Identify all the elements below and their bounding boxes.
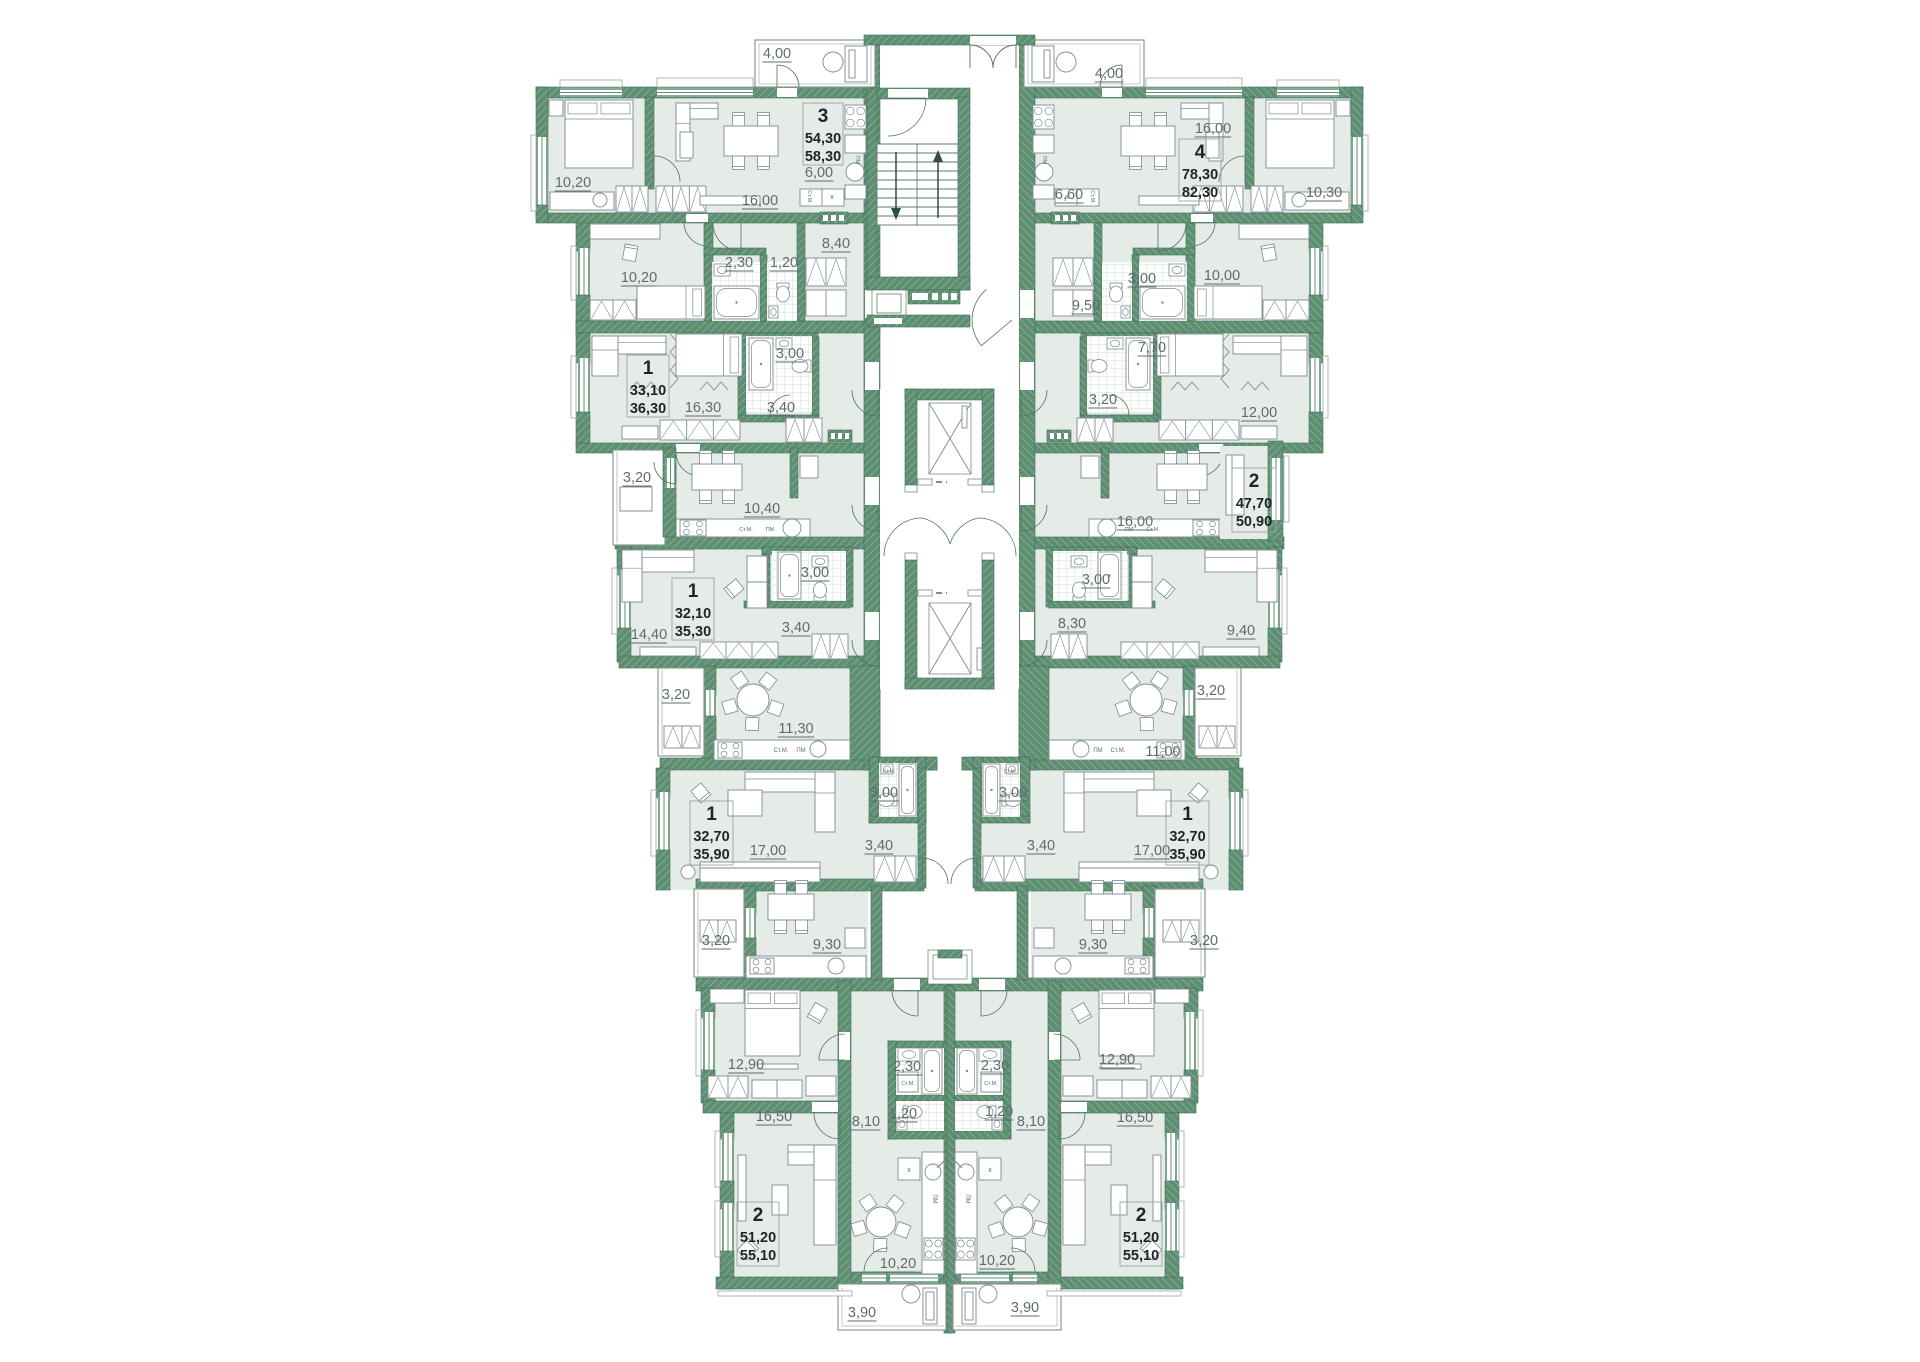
svg-text:58,30: 58,30 [805, 149, 841, 165]
svg-text:3,40: 3,40 [782, 620, 810, 636]
svg-text:3,90: 3,90 [1011, 1300, 1039, 1316]
svg-text:ПМ: ПМ [931, 1194, 937, 1203]
svg-text:ПМ: ПМ [766, 527, 775, 533]
svg-text:7,70: 7,70 [1138, 340, 1166, 356]
svg-text:10,00: 10,00 [1204, 268, 1240, 284]
svg-text:1: 1 [688, 581, 699, 602]
svg-text:4,00: 4,00 [763, 46, 791, 62]
svg-text:6,00: 6,00 [805, 165, 833, 181]
svg-text:Ст.М.: Ст.М. [1111, 748, 1126, 754]
svg-text:x: x [907, 1167, 911, 1174]
svg-text:3,20: 3,20 [623, 470, 651, 486]
svg-text:6,60: 6,60 [1055, 187, 1083, 203]
svg-text:2: 2 [1136, 1205, 1147, 1226]
svg-text:36,30: 36,30 [630, 401, 666, 417]
svg-text:Ст.М.: Ст.М. [774, 748, 789, 754]
svg-text:Ст.М.: Ст.М. [984, 1081, 998, 1087]
svg-text:3,00: 3,00 [776, 346, 804, 362]
svg-text:10,20: 10,20 [979, 1253, 1015, 1269]
svg-text:3,20: 3,20 [662, 687, 690, 703]
svg-text:12,00: 12,00 [1241, 405, 1277, 421]
svg-text:9,50: 9,50 [1072, 298, 1100, 314]
svg-text:2: 2 [1249, 471, 1260, 492]
svg-text:3,00: 3,00 [870, 785, 898, 801]
svg-text:ПМ: ПМ [796, 748, 805, 754]
svg-text:16,50: 16,50 [756, 1109, 792, 1125]
svg-text:17,00: 17,00 [1134, 843, 1170, 859]
svg-text:8,10: 8,10 [852, 1114, 880, 1130]
svg-text:10,20: 10,20 [880, 1256, 916, 1272]
svg-text:50,90: 50,90 [1236, 514, 1272, 530]
svg-text:Ст.М.: Ст.М. [806, 190, 812, 204]
svg-text:55,10: 55,10 [740, 1248, 776, 1264]
svg-text:32,70: 32,70 [1169, 829, 1205, 845]
svg-text:12,90: 12,90 [728, 1057, 764, 1073]
svg-text:35,90: 35,90 [1169, 847, 1205, 863]
svg-text:9,40: 9,40 [1227, 623, 1255, 639]
svg-text:10,40: 10,40 [744, 501, 780, 517]
svg-text:9,30: 9,30 [1079, 937, 1107, 953]
svg-text:3,00: 3,00 [1128, 271, 1156, 287]
svg-text:10,20: 10,20 [621, 270, 657, 286]
svg-text:9,30: 9,30 [813, 937, 841, 953]
svg-text:1,20: 1,20 [770, 255, 798, 271]
svg-text:51,20: 51,20 [740, 1230, 776, 1246]
svg-text:17,00: 17,00 [750, 843, 786, 859]
svg-text:ПМ: ПМ [854, 156, 860, 165]
svg-text:1: 1 [1182, 804, 1193, 825]
svg-text:55,10: 55,10 [1123, 1248, 1159, 1264]
svg-text:35,90: 35,90 [693, 847, 729, 863]
svg-text:2,30: 2,30 [981, 1058, 1009, 1074]
svg-text:11,30: 11,30 [778, 721, 813, 737]
svg-text:2,30: 2,30 [893, 1059, 921, 1075]
svg-text:1: 1 [643, 358, 654, 379]
svg-text:82,30: 82,30 [1182, 185, 1218, 201]
svg-text:78,30: 78,30 [1182, 167, 1218, 183]
svg-text:3,20: 3,20 [1197, 683, 1225, 699]
svg-text:3,40: 3,40 [865, 838, 893, 854]
svg-text:x: x [1065, 194, 1069, 201]
svg-text:35,30: 35,30 [675, 624, 711, 640]
svg-text:14,40: 14,40 [631, 627, 667, 643]
svg-text:3,00: 3,00 [1082, 572, 1110, 588]
svg-text:3,00: 3,00 [801, 565, 829, 581]
svg-text:16,50: 16,50 [1117, 1110, 1153, 1126]
svg-text:2: 2 [753, 1205, 764, 1226]
svg-text:Ст.М.: Ст.М. [1146, 527, 1160, 533]
svg-text:16,00: 16,00 [742, 193, 778, 209]
svg-text:ПМ: ПМ [964, 1194, 970, 1203]
svg-text:3,20: 3,20 [1089, 392, 1117, 408]
svg-text:32,70: 32,70 [693, 829, 729, 845]
svg-text:Ст.М.: Ст.М. [1089, 190, 1095, 204]
svg-text:Ст.М.: Ст.М. [739, 527, 753, 533]
svg-text:10,30: 10,30 [1306, 185, 1342, 201]
svg-text:11,00: 11,00 [1145, 744, 1180, 760]
svg-text:ПМ: ПМ [1093, 748, 1102, 754]
svg-text:3,20: 3,20 [702, 933, 730, 949]
svg-text:10,20: 10,20 [555, 175, 591, 191]
svg-text:4: 4 [1195, 142, 1206, 163]
svg-text:16,00: 16,00 [1195, 121, 1231, 137]
svg-text:ПМ: ПМ [1041, 156, 1047, 165]
svg-text:3,40: 3,40 [767, 400, 795, 416]
svg-text:x: x [830, 194, 834, 201]
svg-text:3,20: 3,20 [1190, 933, 1218, 949]
svg-text:32,10: 32,10 [675, 606, 711, 622]
svg-text:3,00: 3,00 [999, 785, 1027, 801]
svg-text:33,10: 33,10 [630, 383, 666, 399]
svg-text:8,40: 8,40 [822, 236, 850, 252]
svg-text:1: 1 [706, 804, 717, 825]
svg-text:1,20: 1,20 [985, 1104, 1013, 1120]
svg-text:8,30: 8,30 [1058, 616, 1086, 632]
svg-text:3,90: 3,90 [848, 1305, 876, 1321]
svg-text:2,30: 2,30 [725, 255, 753, 271]
svg-text:1,20: 1,20 [889, 1106, 917, 1122]
svg-text:3: 3 [818, 106, 829, 127]
svg-text:Ст.М.: Ст.М. [883, 769, 895, 775]
svg-text:12,90: 12,90 [1099, 1052, 1135, 1068]
svg-text:ПМ: ПМ [1125, 527, 1134, 533]
svg-text:47,70: 47,70 [1236, 496, 1272, 512]
svg-text:51,20: 51,20 [1123, 1230, 1159, 1246]
svg-text:16,30: 16,30 [685, 400, 721, 416]
svg-text:x: x [988, 1167, 992, 1174]
svg-text:Ст.М.: Ст.М. [901, 1081, 915, 1087]
svg-text:3,40: 3,40 [1027, 838, 1055, 854]
svg-text:Ст.М.: Ст.М. [1004, 769, 1016, 775]
svg-text:4,00: 4,00 [1095, 66, 1123, 82]
svg-text:54,30: 54,30 [805, 131, 841, 147]
svg-text:8,10: 8,10 [1017, 1114, 1045, 1130]
